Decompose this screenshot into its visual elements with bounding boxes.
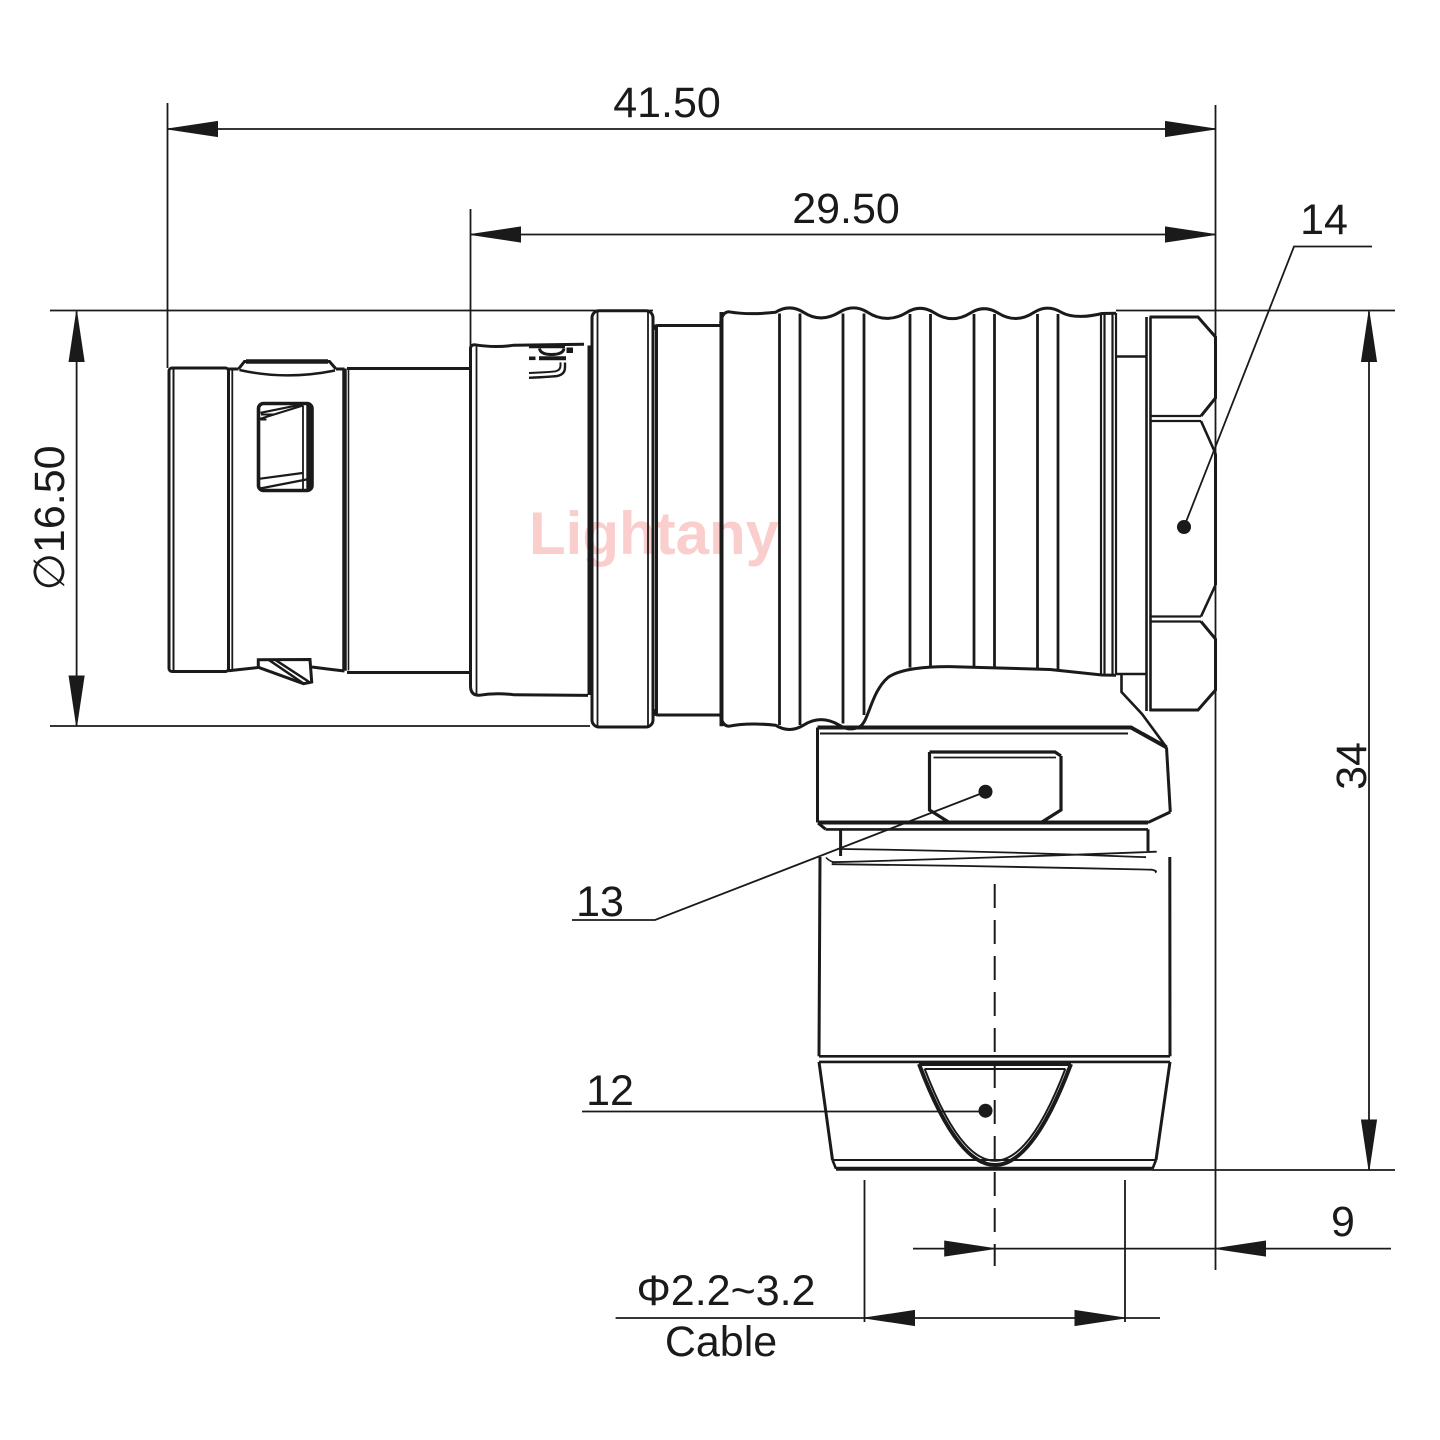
svg-text:14: 14: [1300, 196, 1348, 244]
svg-text:34: 34: [1328, 742, 1376, 790]
svg-text:Φ2.2~3.2: Φ2.2~3.2: [637, 1267, 816, 1315]
svg-text:9: 9: [1331, 1198, 1355, 1246]
svg-text:41.50: 41.50: [613, 79, 721, 127]
svg-text:∅16.50: ∅16.50: [26, 445, 74, 590]
svg-text:13: 13: [576, 878, 624, 926]
svg-text:12: 12: [586, 1067, 634, 1115]
svg-text:29.50: 29.50: [792, 185, 900, 233]
svg-text:Cable: Cable: [665, 1318, 777, 1366]
